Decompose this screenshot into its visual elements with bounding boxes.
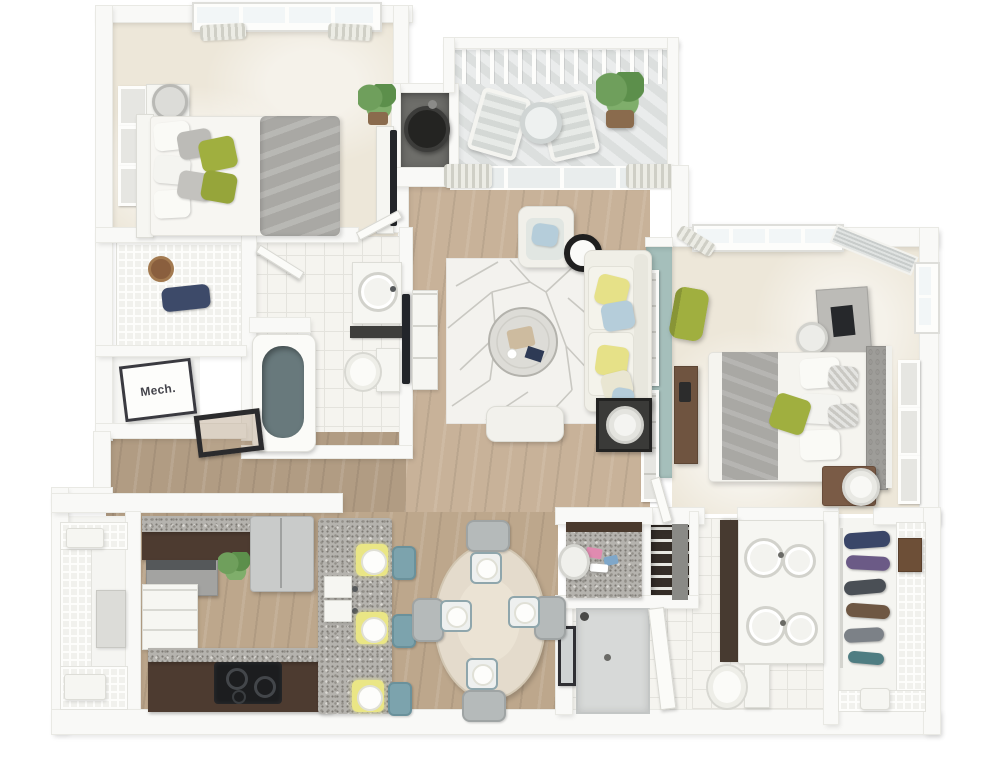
sofa-back — [634, 254, 648, 406]
drum-lamp — [606, 406, 644, 444]
mech-room-board: Mech. — [119, 358, 197, 422]
burner — [232, 690, 246, 704]
nook-item-white — [590, 563, 609, 572]
vanity-sink — [784, 612, 818, 646]
window-pane — [289, 7, 331, 23]
hanging-clothes — [846, 602, 891, 619]
slider-curtain-left — [444, 164, 492, 188]
plate — [514, 602, 536, 624]
ottoman-bench — [486, 406, 564, 442]
wall-mech-top — [96, 346, 246, 356]
island-sink-basin — [324, 576, 352, 598]
balcony-rail-top — [444, 38, 678, 48]
wall-left-of-slider — [392, 168, 452, 186]
wall-linen-right — [690, 512, 698, 602]
table-lamp — [842, 468, 880, 506]
shower-floor — [576, 608, 650, 714]
window-pane — [919, 267, 931, 295]
bathroom1-sink — [358, 272, 398, 312]
wall-bath2-closet-divider — [824, 512, 838, 724]
faucet — [390, 286, 396, 292]
closet-basket — [860, 688, 890, 710]
wall-nook-right — [642, 512, 650, 602]
vanity-sink — [782, 544, 816, 578]
mech-room-label: Mech. — [140, 381, 177, 399]
balcony-table — [520, 102, 562, 144]
window-pane — [769, 229, 801, 243]
hanging-clothes — [843, 530, 890, 549]
plate — [476, 558, 498, 580]
plate — [361, 549, 387, 575]
vanity-cabinet-strip — [720, 520, 738, 662]
hanging-clothes — [846, 555, 891, 571]
window-pane — [243, 7, 285, 23]
master-dresser — [674, 366, 698, 464]
wall-tub-niche — [250, 318, 310, 332]
pillow-blue — [531, 222, 560, 247]
hanging-clothes — [161, 284, 211, 313]
bathtub-basin — [262, 346, 304, 438]
slider-curtain-right — [626, 164, 674, 188]
pillow-patterned — [827, 402, 859, 429]
toilet-bowl — [344, 352, 382, 392]
window-pane — [335, 7, 373, 23]
picture-frame — [898, 456, 920, 504]
toilet-bowl — [706, 664, 748, 710]
floor-plan-image: Mech. — [0, 0, 990, 768]
bedroom1-curtain-right — [328, 23, 373, 41]
kitchen-plant — [218, 552, 250, 580]
balcony-post-left — [444, 38, 454, 92]
dining-chair — [466, 520, 510, 552]
wall-right-outer — [924, 508, 940, 734]
tv — [402, 294, 410, 384]
attic-hatch — [194, 408, 265, 458]
faucet — [352, 586, 358, 592]
vanity-shelf — [350, 326, 402, 338]
kitchen-drawer-cabinet — [142, 584, 198, 650]
pantry-basket — [64, 674, 106, 700]
media-console — [412, 290, 438, 390]
wall-pantry-divider — [126, 512, 140, 714]
water-heater-pipe — [428, 100, 437, 109]
kitchen-bottom-counter — [148, 648, 332, 662]
pillow-blue — [600, 299, 636, 332]
master-window-right — [914, 262, 940, 334]
bed-duvet — [260, 116, 340, 236]
burner — [254, 676, 276, 698]
plate — [446, 606, 468, 628]
table-lamp — [152, 84, 188, 120]
closet-rod — [840, 528, 843, 668]
laptop — [830, 305, 855, 337]
pillow-white — [799, 429, 840, 460]
island-sink-basin — [324, 600, 352, 622]
vanity-sink — [744, 538, 784, 578]
refrigerator — [250, 516, 314, 592]
picture-frame — [898, 360, 920, 408]
master-headboard-frame — [886, 346, 892, 488]
vanity-sink — [746, 606, 786, 646]
balcony-rail-right — [668, 38, 678, 176]
rug-pattern — [446, 258, 600, 424]
dining-chair — [462, 690, 506, 722]
faucet — [778, 552, 784, 558]
water-heater — [404, 106, 450, 152]
bedroom1-curtain-left — [200, 23, 247, 41]
accent-wall-cap-top — [646, 238, 672, 246]
shower-head — [580, 612, 589, 621]
pantry-shelving-unit — [96, 590, 126, 648]
bar-stool — [392, 546, 416, 580]
window-pane — [733, 229, 765, 243]
plate — [357, 685, 383, 711]
faucet — [780, 620, 786, 626]
range-control-band — [146, 560, 216, 570]
hanging-clothes — [844, 627, 885, 643]
shower-drain — [604, 654, 611, 661]
closet-drawer-box — [898, 538, 922, 572]
window-pane — [197, 7, 239, 23]
burner — [226, 668, 248, 690]
dresser-decor — [679, 382, 691, 402]
window-pane — [919, 298, 931, 325]
wall-kitchen-top — [52, 494, 342, 512]
picture-frame — [898, 408, 920, 456]
balcony-plant-pot — [606, 110, 634, 128]
area-rug — [446, 258, 600, 424]
plate — [472, 664, 494, 686]
wall-left-lower — [94, 432, 110, 494]
storage-basket — [148, 256, 174, 282]
refrigerator-door-split — [280, 518, 282, 588]
pantry-basket — [66, 528, 104, 548]
nook-chair — [558, 544, 590, 580]
pillow-green — [200, 169, 239, 204]
pillow-patterned — [827, 365, 859, 392]
desk-chair — [796, 322, 828, 354]
linen-closet-panel — [672, 524, 688, 600]
desk-nook-edge — [566, 522, 642, 532]
plate — [361, 617, 387, 643]
wall-left-upper — [96, 6, 112, 440]
bar-stool — [388, 682, 412, 716]
wall-bedroom1-right — [394, 6, 408, 90]
plant-pot — [368, 112, 388, 125]
